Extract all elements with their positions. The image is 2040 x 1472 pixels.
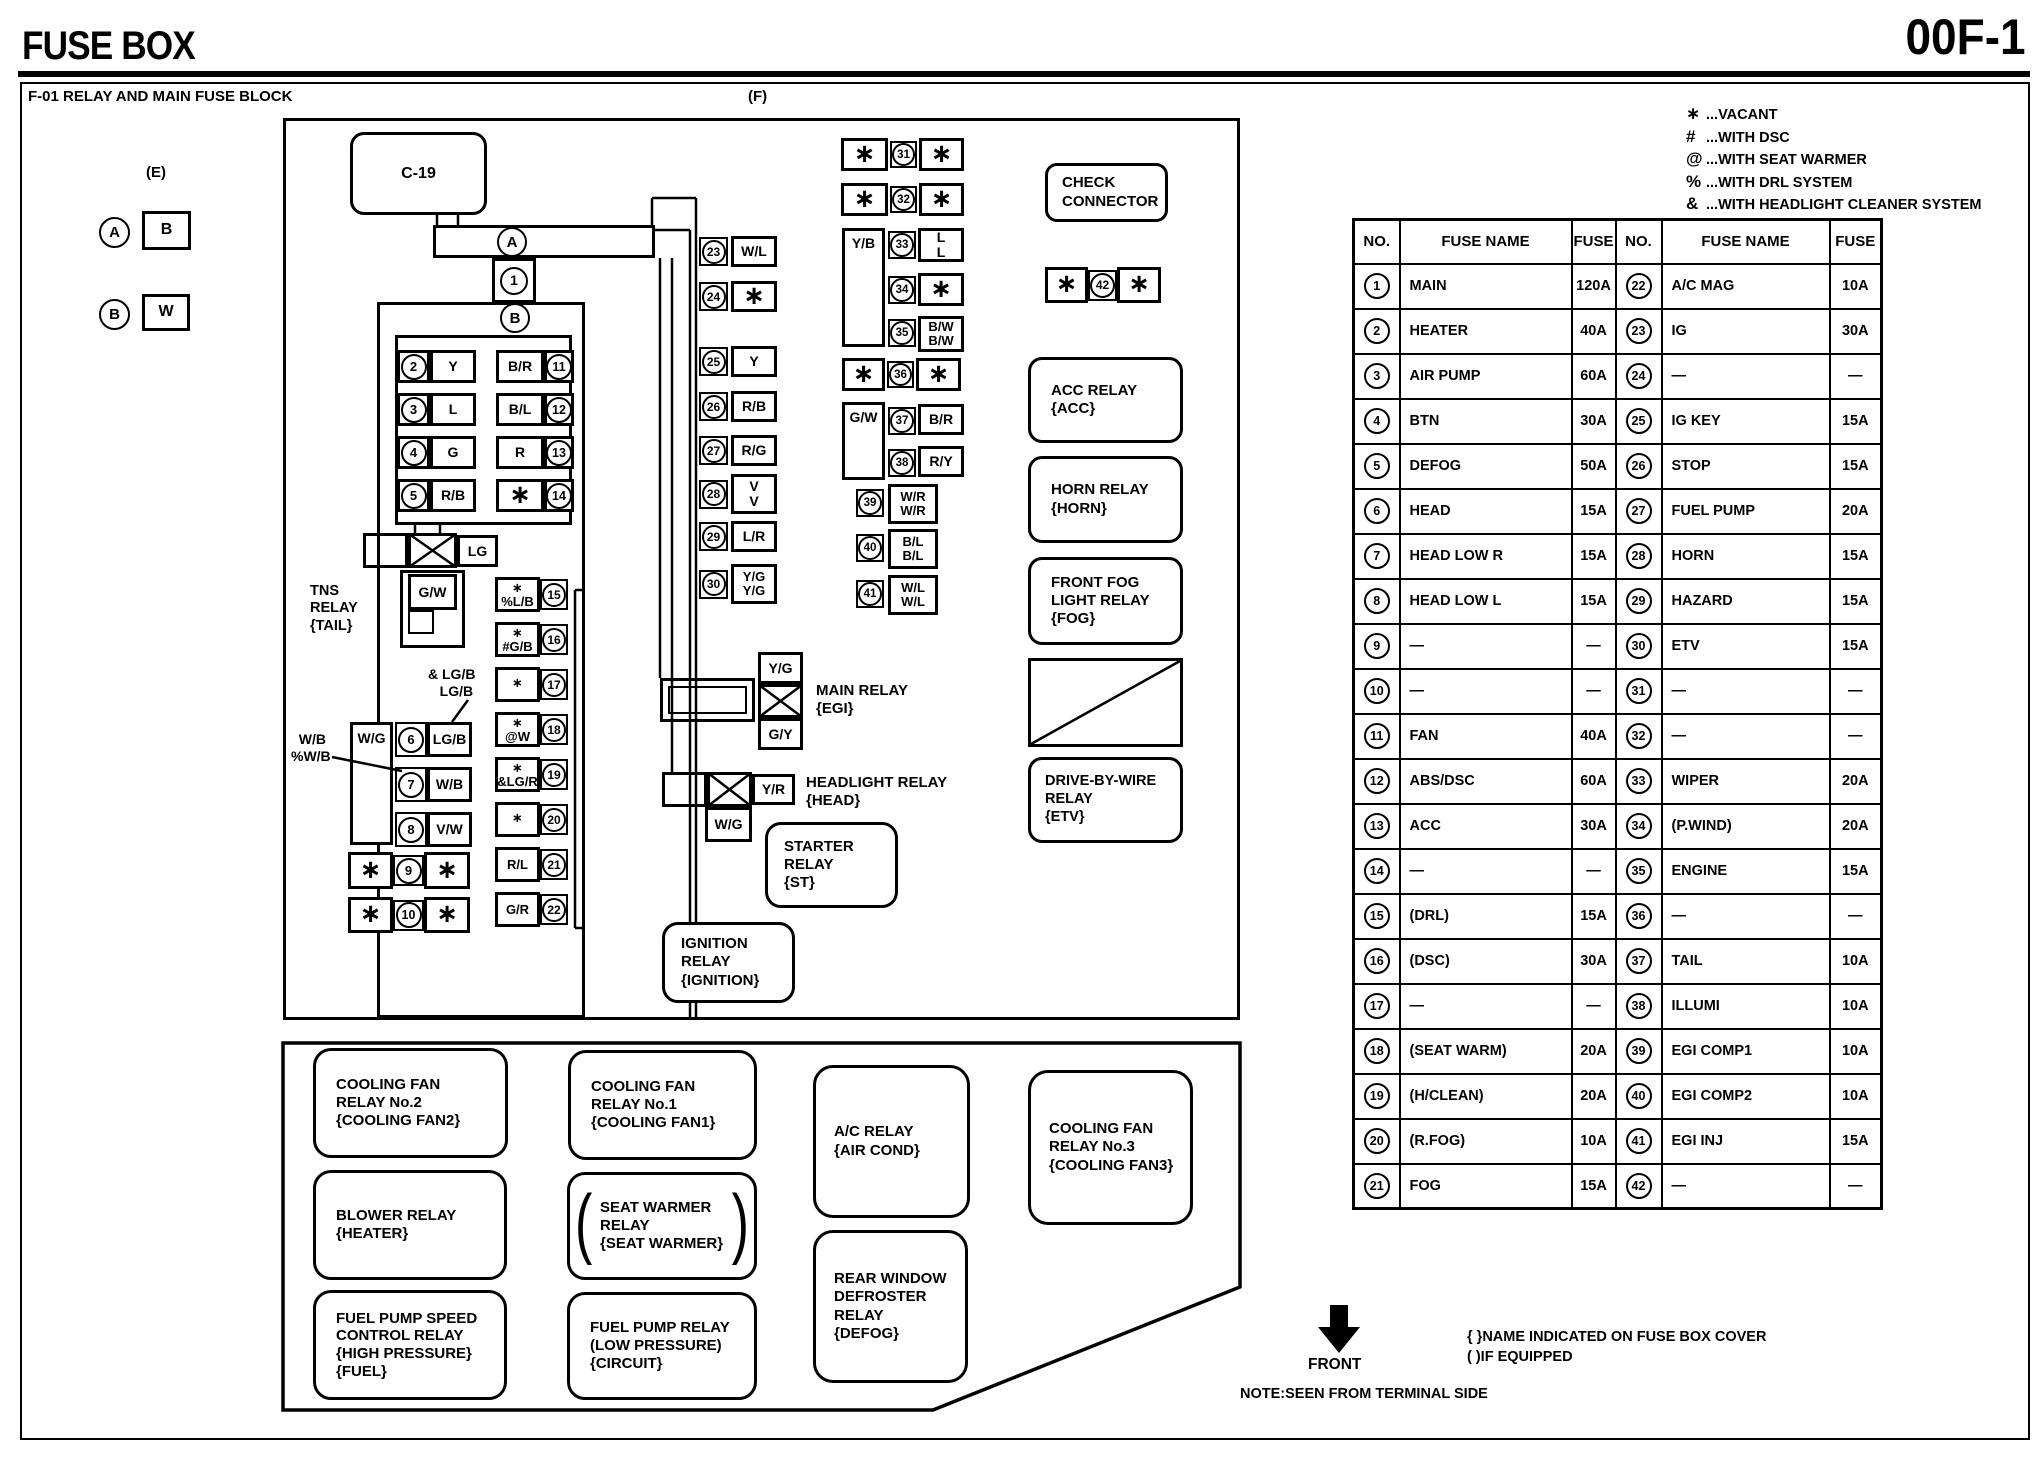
fuse-no: 37 — [1626, 948, 1652, 974]
fuse-cell: ∗ #G/B — [495, 622, 540, 657]
fuse-name-cell: EGI COMP1 — [1662, 1029, 1830, 1074]
fuse-amp-cell: 15A — [1572, 579, 1616, 624]
fuse-no: 12 — [1364, 768, 1390, 794]
fuse-amp-cell: 10A — [1830, 1029, 1882, 1074]
fuse-rows-2-5: 2 Y B/R 11 3 L B/L 12 4 G R 13 — [397, 350, 574, 522]
fuse-no: 3 — [401, 397, 427, 423]
fuse-row-9: ∗ 9 ∗ — [348, 852, 470, 889]
fuse-amp-cell: 15A — [1572, 489, 1616, 534]
fuse-no: 19 — [542, 763, 566, 787]
fuse-row-27: 27R/G — [699, 435, 777, 466]
fuse-amp-cell: 40A — [1572, 309, 1616, 354]
fuse-no: 27 — [1626, 498, 1652, 524]
fuse-cell: W/R W/R — [888, 484, 938, 524]
cooling-fan-relay-2: COOLING FAN RELAY No.2 {COOLING FAN2} — [313, 1048, 508, 1158]
figure-f-label: (F) — [748, 88, 767, 106]
col-header: NO. — [1616, 220, 1662, 264]
fuse-no: 38 — [890, 451, 914, 475]
fuse-row: 8 V/W — [395, 812, 472, 847]
fuse-name-cell: — — [1400, 849, 1572, 894]
fuse-amp-cell: 15A — [1572, 1164, 1616, 1209]
seat-warmer-relay: ( SEAT WARMER RELAY {SEAT WARMER} ) — [567, 1172, 757, 1280]
legend-symbol: % — [1686, 172, 1706, 192]
fuse-no: 25 — [1626, 408, 1652, 434]
fuse-no-cell: 4 — [1354, 399, 1400, 444]
fuse-amp-cell: 15A — [1572, 894, 1616, 939]
fuse-amp-cell: 15A — [1572, 534, 1616, 579]
tns-relay-label: TNS RELAY {TAIL} — [310, 583, 358, 635]
fuse-no: 7 — [398, 772, 424, 798]
fuse-no: 30 — [702, 572, 726, 596]
fuse-cell: ∗ — [919, 138, 964, 171]
connector-a-circle: A — [99, 217, 130, 248]
fuse-name-cell: ACC — [1400, 804, 1572, 849]
fuse-name-cell: AIR PUMP — [1400, 354, 1572, 399]
fuse-name-cell: HEAD — [1400, 489, 1572, 534]
bus-bar-a-circle: A — [497, 227, 527, 257]
fuse-cell: ∗ — [1045, 267, 1088, 303]
fuse-name-cell: ILLUMI — [1662, 984, 1830, 1029]
fuse-row: ∗ 17 — [495, 667, 568, 702]
fuse-amp-cell: — — [1572, 849, 1616, 894]
fuse-amp-cell: 40A — [1572, 714, 1616, 759]
fuse-no: 20 — [542, 808, 566, 832]
fuse-no-cell: 29 — [1616, 579, 1662, 624]
fuse-cell: L L — [918, 228, 964, 262]
fuse-no: 32 — [892, 188, 915, 211]
fuse-cell: ∗ — [348, 897, 393, 933]
fuse-no: 14 — [1364, 858, 1390, 884]
tns-relay-xbox — [408, 533, 457, 568]
cooling-fan-relay-3: COOLING FAN RELAY No.3 {COOLING FAN3} — [1028, 1070, 1193, 1225]
fuse-no: 18 — [542, 718, 566, 742]
fuse-no: 22 — [1626, 273, 1652, 299]
fuse-name-cell: TAIL — [1662, 939, 1830, 984]
fuse-table-row: 12 ABS/DSC 60A 33 WIPER 20A — [1354, 759, 1882, 804]
fuse-row-26: 26R/B — [699, 391, 777, 422]
fuse-no-cell: 6 — [1354, 489, 1400, 534]
headlight-relay-label: HEADLIGHT RELAY {HEAD} — [806, 774, 947, 810]
fuse-cell: L/R — [731, 521, 777, 552]
fuse-name-cell: — — [1662, 1164, 1830, 1209]
fuse-no: 33 — [1626, 768, 1652, 794]
fuse-cell: Y — [430, 350, 476, 383]
fuse-row: ∗ 20 — [495, 802, 568, 837]
fuse-name-cell: (SEAT WARM) — [1400, 1029, 1572, 1074]
tns-notch — [408, 610, 434, 634]
fuse-no-cell: 23 — [1616, 309, 1662, 354]
fuse-col-15-22: ∗ %L/B 15 ∗ #G/B 16 ∗ 17 ∗ @W 18 ∗ &LG/R… — [495, 577, 568, 937]
fuse-no: 32 — [1626, 723, 1652, 749]
fuse-no-box: 14 — [544, 479, 574, 512]
fuse-row-30: 30Y/G Y/G — [699, 564, 777, 604]
circle-a: A — [497, 227, 527, 257]
fuse-amp-cell: 15A — [1830, 534, 1882, 579]
fuse-no-cell: 40 — [1616, 1074, 1662, 1119]
fuse-no-cell: 26 — [1616, 444, 1662, 489]
fuse-name-cell: MAIN — [1400, 264, 1572, 309]
fuse-no-cell: 8 — [1354, 579, 1400, 624]
fuse-name-cell: (H/CLEAN) — [1400, 1074, 1572, 1119]
fuse-name-cell: — — [1400, 669, 1572, 714]
fuse-row-32: ∗ 32 ∗ — [841, 183, 964, 216]
fuse-no: 20 — [1364, 1128, 1390, 1154]
fuse-no-cell: 19 — [1354, 1074, 1400, 1119]
headlight-wg-cell: W/G — [705, 807, 752, 842]
fuse-amp-cell: 15A — [1830, 444, 1882, 489]
fuse-no-box: 40 — [856, 534, 884, 562]
fuse-no: 33 — [890, 233, 914, 257]
fuse-amp-cell: 30A — [1572, 804, 1616, 849]
fuse-no-cell: 5 — [1354, 444, 1400, 489]
fuse-table-row: 15 (DRL) 15A 36 — — — [1354, 894, 1882, 939]
fuse-cell: ∗ — [348, 852, 393, 889]
fuse-no: 24 — [1626, 363, 1652, 389]
fuse-name-cell: ENGINE — [1662, 849, 1830, 894]
legend-text: ...WITH DSC — [1706, 130, 1790, 146]
fuse-no: 17 — [542, 673, 566, 697]
legend-item: ∗ ...VACANT — [1686, 104, 1982, 124]
fuse-no: 16 — [542, 628, 566, 652]
fuse-no: 40 — [1626, 1083, 1652, 1109]
fuse-no: 25 — [702, 350, 726, 374]
fuse-no: 11 — [546, 354, 572, 380]
main-relay-label: MAIN RELAY {EGI} — [816, 682, 908, 718]
fuse-row: ∗ #G/B 16 — [495, 622, 568, 657]
seat-warmer-label: SEAT WARMER RELAY {SEAT WARMER} — [600, 1199, 723, 1254]
fuse-no: 6 — [1364, 498, 1390, 524]
node-1-box: 1 — [492, 258, 536, 303]
fuse-table-row: 3 AIR PUMP 60A 24 — — — [1354, 354, 1882, 399]
fuse-amp-cell: 20A — [1830, 489, 1882, 534]
fuse-cell: G — [430, 436, 476, 469]
fuse-no-cell: 3 — [1354, 354, 1400, 399]
fuse-no-cell: 1 — [1354, 264, 1400, 309]
fuse-amp-cell: 15A — [1830, 849, 1882, 894]
fuse-amp-cell: 30A — [1830, 309, 1882, 354]
fuse-no: 2 — [401, 354, 427, 380]
page-title: FUSE BOX — [22, 24, 195, 69]
front-label: FRONT — [1308, 1356, 1361, 1374]
fuse-no-box: 10 — [393, 900, 424, 931]
circle-1: 1 — [500, 267, 528, 295]
fuse-cell: G/R — [495, 892, 540, 927]
fuse-name-cell: WIPER — [1662, 759, 1830, 804]
wg-tall-cell: W/G — [350, 722, 393, 845]
fuse-no-cell: 36 — [1616, 894, 1662, 939]
fuse-no: 8 — [1364, 588, 1390, 614]
fuse-no: 27 — [702, 439, 726, 463]
fuse-table-row: 16 (DSC) 30A 37 TAIL 10A — [1354, 939, 1882, 984]
fuse-no-cell: 33 — [1616, 759, 1662, 804]
fuse-no: 12 — [546, 397, 572, 423]
vacant-relay-slot — [1028, 658, 1183, 747]
fuse-name-cell: — — [1400, 984, 1572, 1029]
fuse-row: ∗ &LG/R 19 — [495, 757, 568, 792]
gw-tall-cell: G/W — [842, 402, 885, 480]
fuse-no: 15 — [1364, 903, 1390, 929]
fuse-amp-cell: 10A — [1830, 264, 1882, 309]
fuse-no-cell: 9 — [1354, 624, 1400, 669]
fuse-no: 10 — [396, 902, 422, 928]
fuse-cell: ∗ @W — [495, 712, 540, 747]
fuse-name-cell: (P.WIND) — [1662, 804, 1830, 849]
fuse-no-cell: 14 — [1354, 849, 1400, 894]
drive-by-wire-relay: DRIVE-BY-WIRE RELAY {ETV} — [1028, 757, 1183, 843]
fuse-no: 34 — [1626, 813, 1652, 839]
fuse-no: 17 — [1364, 993, 1390, 1019]
fuse-no: 8 — [398, 817, 424, 843]
fuse-row-10: ∗ 10 ∗ — [348, 897, 470, 933]
fuel-pump-relay: FUEL PUMP RELAY (LOW PRESSURE) {CIRCUIT} — [567, 1292, 757, 1400]
fuse-name-cell: — — [1662, 714, 1830, 759]
figure-e-label: (E) — [146, 164, 166, 182]
fuse-no-box: 7 — [395, 767, 427, 802]
main-relay-xbox — [758, 684, 803, 718]
fuse-table-row: 18 (SEAT WARM) 20A 39 EGI COMP1 10A — [1354, 1029, 1882, 1074]
fuse-name-cell: EGI INJ — [1662, 1119, 1830, 1164]
fuse-table-row: 10 — — 31 — — — [1354, 669, 1882, 714]
fuse-no-cell: 18 — [1354, 1029, 1400, 1074]
fuse-amp-cell: 15A — [1830, 399, 1882, 444]
fuse-no: 9 — [1364, 633, 1390, 659]
cooling-fan-relay-1: COOLING FAN RELAY No.1 {COOLING FAN1} — [568, 1050, 757, 1160]
fuse-no-box: 5 — [397, 479, 430, 512]
fuse-amp-cell: 30A — [1572, 939, 1616, 984]
legend-item: % ...WITH DRL SYSTEM — [1686, 172, 1982, 192]
fuse-no-box: 2 — [397, 350, 430, 383]
fuse-no-box: 19 — [540, 759, 568, 790]
fuse-no-cell: 35 — [1616, 849, 1662, 894]
fuse-no: 24 — [702, 285, 726, 309]
fuse-cell: W/B — [427, 767, 472, 802]
fuse-cell: ∗ — [424, 852, 470, 889]
legend: ∗ ...VACANT # ...WITH DSC @ ...WITH SEAT… — [1686, 104, 1982, 217]
fuse-amp-cell: — — [1830, 669, 1882, 714]
fuse-no: 5 — [1364, 453, 1390, 479]
acc-relay: ACC RELAY {ACC} — [1028, 357, 1183, 443]
legend-item: & ...WITH HEADLIGHT CLEANER SYSTEM — [1686, 194, 1982, 214]
fuse-no: 39 — [858, 491, 882, 515]
fuse-no: 36 — [1626, 903, 1652, 929]
fuse-cell: R/B — [430, 479, 476, 512]
fuse-no: 42 — [1090, 273, 1115, 298]
fuse-name-cell: HEATER — [1400, 309, 1572, 354]
seat-warmer-paren-right: ) — [732, 1177, 749, 1272]
fuse-amp-cell: 10A — [1830, 1074, 1882, 1119]
fuse-name-cell: BTN — [1400, 399, 1572, 444]
fuse-table-row: 5 DEFOG 50A 26 STOP 15A — [1354, 444, 1882, 489]
fuse-no-box: 21 — [540, 849, 568, 880]
fuse-no: 22 — [542, 898, 566, 922]
fuse-amp-cell: 10A — [1830, 984, 1882, 1029]
fuse-amp-cell: 60A — [1572, 759, 1616, 804]
fuse-no-box: 13 — [544, 436, 574, 469]
main-relay-gy-cell: G/Y — [758, 718, 803, 750]
fuse-no: 15 — [542, 583, 566, 607]
fuse-no: 23 — [702, 240, 726, 264]
tns-connector — [363, 533, 408, 568]
fuse-table-row: 1 MAIN 120A 22 A/C MAG 10A — [1354, 264, 1882, 309]
fuse-name-cell: (DSC) — [1400, 939, 1572, 984]
note-cover: { }NAME INDICATED ON FUSE BOX COVER — [1467, 1329, 1766, 1345]
fuse-no-cell: 7 — [1354, 534, 1400, 579]
fuse-name-cell: — — [1662, 669, 1830, 714]
fuse-no-cell: 38 — [1616, 984, 1662, 1029]
fuse-cell: ∗ — [495, 667, 540, 702]
fuse-no-box: 3 — [397, 393, 430, 426]
fuse-table-row: 9 — — 30 ETV 15A — [1354, 624, 1882, 669]
blower-relay: BLOWER RELAY {HEATER} — [313, 1170, 507, 1280]
fuse-amp-cell: — — [1572, 624, 1616, 669]
fuse-no: 31 — [892, 143, 915, 166]
fuse-no-box: 39 — [856, 489, 884, 517]
fuse-no: 4 — [1364, 408, 1390, 434]
fuse-no: 30 — [1626, 633, 1652, 659]
check-connector: CHECK CONNECTOR — [1045, 163, 1168, 222]
fuse-name-cell: HEAD LOW L — [1400, 579, 1572, 624]
fuse-table-row: 14 — — 35 ENGINE 15A — [1354, 849, 1882, 894]
tns-lg-cell: LG — [457, 535, 498, 567]
ac-relay: A/C RELAY {AIR COND} — [813, 1065, 970, 1218]
tns-gw-cell: G/W — [408, 574, 457, 610]
fuse-table-row: 13 ACC 30A 34 (P.WIND) 20A — [1354, 804, 1882, 849]
fuse-no: 13 — [1364, 813, 1390, 839]
fuse-no-cell: 12 — [1354, 759, 1400, 804]
fuse-no: 40 — [858, 536, 882, 560]
fuse-amp-cell: 120A — [1572, 264, 1616, 309]
fuse-no: 29 — [1626, 588, 1652, 614]
fuse-cell: ∗ — [731, 281, 777, 312]
fuse-no: 42 — [1626, 1173, 1652, 1199]
fuse-cell: W/L W/L — [888, 575, 938, 615]
fuse-cell: L — [430, 393, 476, 426]
legend-symbol: ∗ — [1686, 104, 1706, 124]
fuse-no: 38 — [1626, 993, 1652, 1019]
fuse-no-box: 17 — [540, 669, 568, 700]
fuse-no: 9 — [396, 858, 422, 884]
fuse-row-29: 29L/R — [699, 521, 777, 552]
fuse-name-cell: (R.FOG) — [1400, 1119, 1572, 1164]
fuse-no-box: 12 — [544, 393, 574, 426]
fuse-cell: ∗ — [918, 273, 964, 306]
fuse-name-cell: FUEL PUMP — [1662, 489, 1830, 534]
fuse-name-cell: FAN — [1400, 714, 1572, 759]
fuse-no-cell: 13 — [1354, 804, 1400, 849]
note-terminal: NOTE:SEEN FROM TERMINAL SIDE — [1240, 1386, 1488, 1402]
seat-warmer-paren-left: ( — [575, 1177, 592, 1272]
fuse-row: R/L 21 — [495, 847, 568, 882]
fuse-table-row: 8 HEAD LOW L 15A 29 HAZARD 15A — [1354, 579, 1882, 624]
fuse-no-box: 34 — [888, 276, 916, 304]
fuse-row: 3 L B/L 12 — [397, 393, 574, 426]
fuse-cell: ∗ %L/B — [495, 577, 540, 612]
fuse-no-box: 11 — [544, 350, 574, 383]
fuse-no-cell: 37 — [1616, 939, 1662, 984]
legend-text: ...WITH DRL SYSTEM — [1706, 175, 1852, 191]
fuse-table-row: 11 FAN 40A 32 — — — [1354, 714, 1882, 759]
col-header: FUSE — [1572, 220, 1616, 264]
fuse-cell: ∗ — [841, 183, 888, 216]
fuse-cell: LG/B — [427, 722, 472, 757]
fuse-row-24: 24∗ — [699, 281, 777, 312]
fuse-amp-cell: 15A — [1830, 1119, 1882, 1164]
fuse-no-box: 22 — [540, 894, 568, 925]
fuse-no: 37 — [890, 409, 914, 433]
front-fog-relay: FRONT FOG LIGHT RELAY {FOG} — [1028, 557, 1183, 645]
connector-a: A — [99, 217, 130, 248]
fuse-cell: ∗ — [495, 802, 540, 837]
fuse-name-cell: STOP — [1662, 444, 1830, 489]
fuse-amp-cell: 50A — [1572, 444, 1616, 489]
fuse-no: 18 — [1364, 1038, 1390, 1064]
fuse-no-cell: 20 — [1354, 1119, 1400, 1164]
fuse-cell: R/Y — [918, 446, 964, 477]
fuse-amp-cell: — — [1830, 1164, 1882, 1209]
fuse-no: 4 — [401, 440, 427, 466]
fuse-no-box: 41 — [856, 580, 884, 608]
fuse-row: 6 LG/B — [395, 722, 472, 757]
fuse-row-36: ∗ 36 ∗ — [842, 358, 961, 391]
fuse-name-cell: — — [1662, 894, 1830, 939]
fuse-row: 5 R/B ∗ 14 — [397, 479, 574, 512]
headlight-yr-cell: Y/R — [752, 774, 795, 805]
fuse-no-box: 33 — [888, 231, 916, 259]
fuse-cell: B/R — [918, 404, 964, 435]
legend-symbol: @ — [1686, 149, 1706, 169]
fuse-amp-cell: — — [1572, 984, 1616, 1029]
fuse-row-31: ∗ 31 ∗ — [841, 138, 964, 171]
fuse-table-row: 19 (H/CLEAN) 20A 40 EGI COMP2 10A — [1354, 1074, 1882, 1119]
fuse-no: 29 — [702, 525, 726, 549]
fuse-row: ∗ %L/B 15 — [495, 577, 568, 612]
fuse-no: 23 — [1626, 318, 1652, 344]
main-relay-yg-cell: Y/G — [758, 652, 803, 684]
fuse-no-cell: 27 — [1616, 489, 1662, 534]
fuse-no-cell: 28 — [1616, 534, 1662, 579]
fuse-no: 35 — [1626, 858, 1652, 884]
fuse-table-row: 20 (R.FOG) 10A 41 EGI INJ 15A — [1354, 1119, 1882, 1164]
fuse-no: 11 — [1364, 723, 1390, 749]
legend-symbol: & — [1686, 194, 1706, 214]
fuse-amp-cell: 60A — [1572, 354, 1616, 399]
title-divider — [18, 71, 2030, 77]
fuse-no: 21 — [1364, 1173, 1390, 1199]
connector-b-circle: B — [99, 299, 130, 330]
fuse-amp-cell: 20A — [1830, 804, 1882, 849]
fuse-no: 5 — [401, 483, 427, 509]
fuse-table-row: 21 FOG 15A 42 — — — [1354, 1164, 1882, 1209]
fuse-col-6-8: 6 LG/B 7 W/B 8 V/W — [395, 722, 472, 857]
fuse-cell: Y — [731, 346, 777, 377]
legend-item: @ ...WITH SEAT WARMER — [1686, 149, 1982, 169]
fuse-cell: ∗ — [1117, 267, 1161, 303]
yb-tall-cell: Y/B — [842, 228, 885, 347]
fuse-no-cell: 34 — [1616, 804, 1662, 849]
fuse-amp-cell: 15A — [1830, 624, 1882, 669]
fuse-cell: ∗ — [841, 138, 888, 171]
col-header: FUSE — [1830, 220, 1882, 264]
fuse-row: G/R 22 — [495, 892, 568, 927]
fuse-no: 28 — [702, 482, 726, 506]
fuse-name-cell: IG — [1662, 309, 1830, 354]
legend-text: ...WITH SEAT WARMER — [1706, 152, 1867, 168]
callout-lgb: & LG/B LG/B — [428, 666, 475, 700]
fuse-name-cell: — — [1662, 354, 1830, 399]
fuse-cell: R/G — [731, 435, 777, 466]
fuse-no-cell: 32 — [1616, 714, 1662, 759]
fuse-table: NO. FUSE NAME FUSE NO. FUSE NAME FUSE 1 … — [1352, 218, 1883, 1210]
